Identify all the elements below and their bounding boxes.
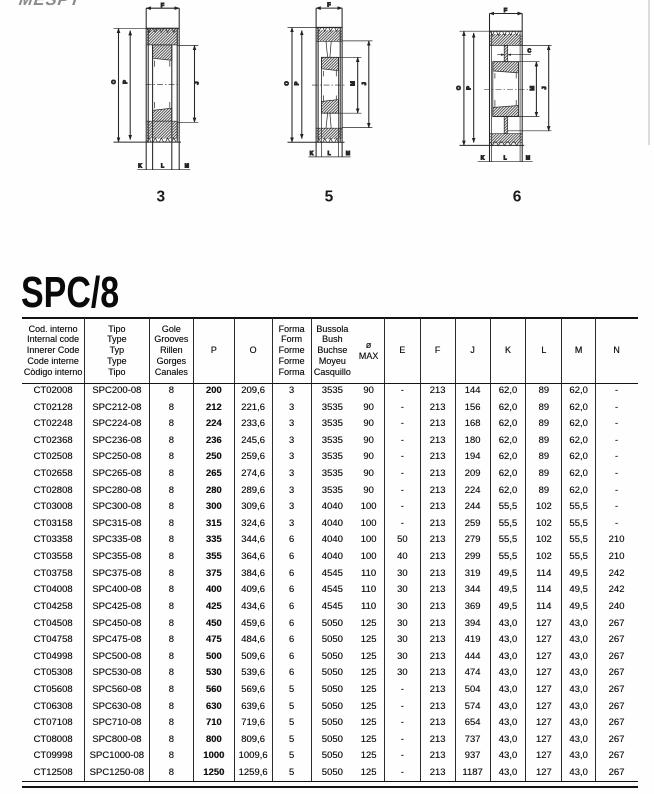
svg-text:F: F — [327, 3, 331, 9]
svg-text:O: O — [285, 81, 291, 86]
svg-text:F: F — [161, 3, 165, 9]
svg-text:K: K — [310, 151, 314, 157]
svg-text:M: M — [350, 81, 356, 86]
svg-text:J: J — [195, 81, 201, 84]
svg-text:O: O — [457, 85, 463, 90]
svg-text:M: M — [530, 86, 536, 91]
svg-text:P: P — [295, 81, 301, 85]
svg-text:5: 5 — [325, 189, 334, 206]
svg-text:O: O — [112, 79, 118, 84]
svg-text:L: L — [328, 151, 331, 157]
svg-text:C: C — [528, 49, 532, 55]
svg-text:3: 3 — [156, 189, 165, 206]
svg-text:6: 6 — [513, 189, 522, 206]
svg-text:L: L — [504, 156, 507, 162]
svg-text:M: M — [526, 156, 530, 162]
svg-text:L: L — [161, 164, 164, 170]
svg-text:K: K — [138, 164, 142, 170]
svg-text:J: J — [542, 86, 548, 89]
svg-text:P: P — [467, 86, 473, 90]
svg-text:P: P — [123, 80, 129, 84]
svg-text:F: F — [504, 8, 508, 14]
svg-text:M: M — [185, 164, 189, 170]
svg-text:K: K — [481, 156, 485, 162]
svg-text:J: J — [362, 82, 368, 85]
svg-text:M: M — [346, 151, 350, 157]
